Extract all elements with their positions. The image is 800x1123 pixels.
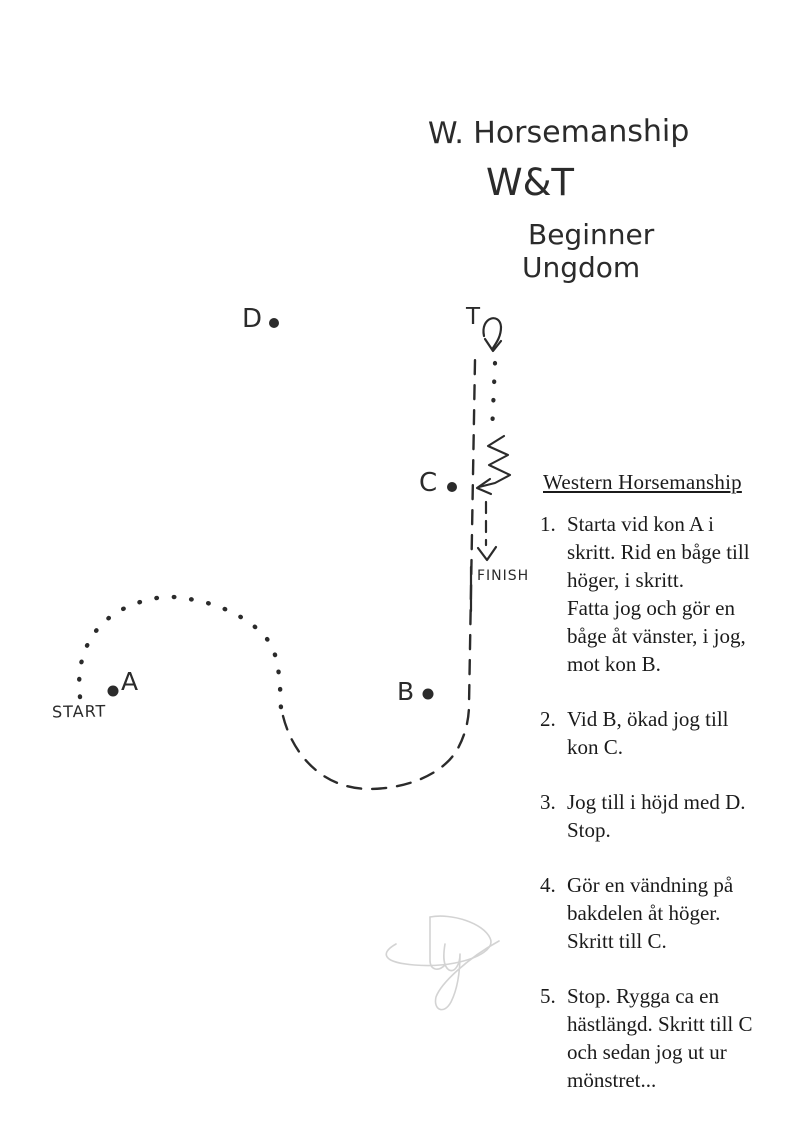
instruction-text: Gör en vändning på bakdelen åt höger. Sk… xyxy=(567,871,733,955)
instructions-heading: Western Horsemanship xyxy=(543,470,798,495)
start-label: START xyxy=(52,704,107,721)
cone-c-label: C xyxy=(419,470,437,496)
cone-d-dot xyxy=(269,318,279,328)
instruction-number: 1. xyxy=(540,510,567,678)
finish-arrow-icon xyxy=(471,502,496,611)
walk-down-dotted-line xyxy=(492,363,495,433)
instructions-column: Western Horsemanship 1. Starta vid kon A… xyxy=(540,470,798,1121)
instruction-number: 2. xyxy=(540,705,567,761)
instruction-item-4: 4. Gör en vändning på bakdelen åt höger.… xyxy=(540,871,798,955)
instruction-text: Jog till i höjd med D. Stop. xyxy=(567,788,746,844)
cone-b-dot xyxy=(423,689,434,700)
instruction-item-3: 3. Jog till i höjd med D. Stop. xyxy=(540,788,798,844)
instruction-text: Stop. Rygga ca en hästlängd. Skritt till… xyxy=(567,982,753,1094)
instruction-text: Vid B, ökad jog till kon C. xyxy=(567,705,729,761)
cone-d-label: D xyxy=(242,306,262,332)
finish-label: FINISH xyxy=(477,569,529,583)
instruction-item-1: 1. Starta vid kon A i skritt. Rid en båg… xyxy=(540,510,798,678)
turn-label: T xyxy=(466,306,480,329)
title-line-3: Beginner xyxy=(528,221,654,249)
instruction-number: 4. xyxy=(540,871,567,955)
title-line-2: W&T xyxy=(486,164,574,201)
cone-a-label: A xyxy=(121,669,138,694)
instruction-number: 3. xyxy=(540,788,567,844)
scanned-pattern-sheet: W. Horsemanship W&T Beginner Ungdom D T … xyxy=(0,0,800,1123)
instruction-number: 5. xyxy=(540,982,567,1094)
backup-zigzag-arrow-icon xyxy=(477,436,510,494)
turn-arrow-icon xyxy=(483,318,501,351)
jog-dashed-line xyxy=(283,360,475,789)
cone-b-label: B xyxy=(397,679,414,704)
cone-a-dot xyxy=(108,686,119,697)
title-line-4: Ungdom xyxy=(522,254,640,282)
cone-c-dot xyxy=(447,482,457,492)
instruction-item-2: 2. Vid B, ökad jog till kon C. xyxy=(540,705,798,761)
pencil-signature xyxy=(386,916,499,1009)
instruction-text: Starta vid kon A i skritt. Rid en båge t… xyxy=(567,510,750,678)
instruction-item-5: 5. Stop. Rygga ca en hästlängd. Skritt t… xyxy=(540,982,798,1094)
title-line-1: W. Horsemanship xyxy=(428,117,690,150)
